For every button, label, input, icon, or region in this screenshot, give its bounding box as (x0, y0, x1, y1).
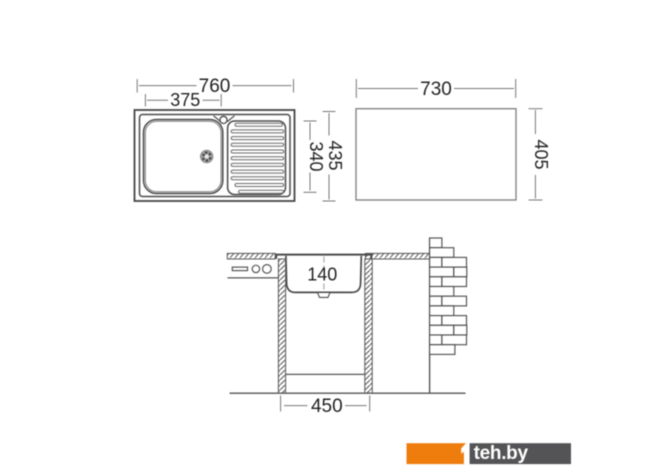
svg-text:760: 760 (199, 76, 231, 97)
svg-text:375: 375 (170, 90, 200, 110)
svg-text:340: 340 (306, 141, 326, 171)
svg-text:730: 730 (420, 79, 452, 100)
svg-text:435: 435 (325, 140, 345, 170)
svg-text:405: 405 (531, 139, 551, 169)
svg-text:teh.by: teh.by (474, 443, 529, 464)
svg-text:140: 140 (307, 264, 337, 284)
svg-text:450: 450 (311, 396, 343, 417)
